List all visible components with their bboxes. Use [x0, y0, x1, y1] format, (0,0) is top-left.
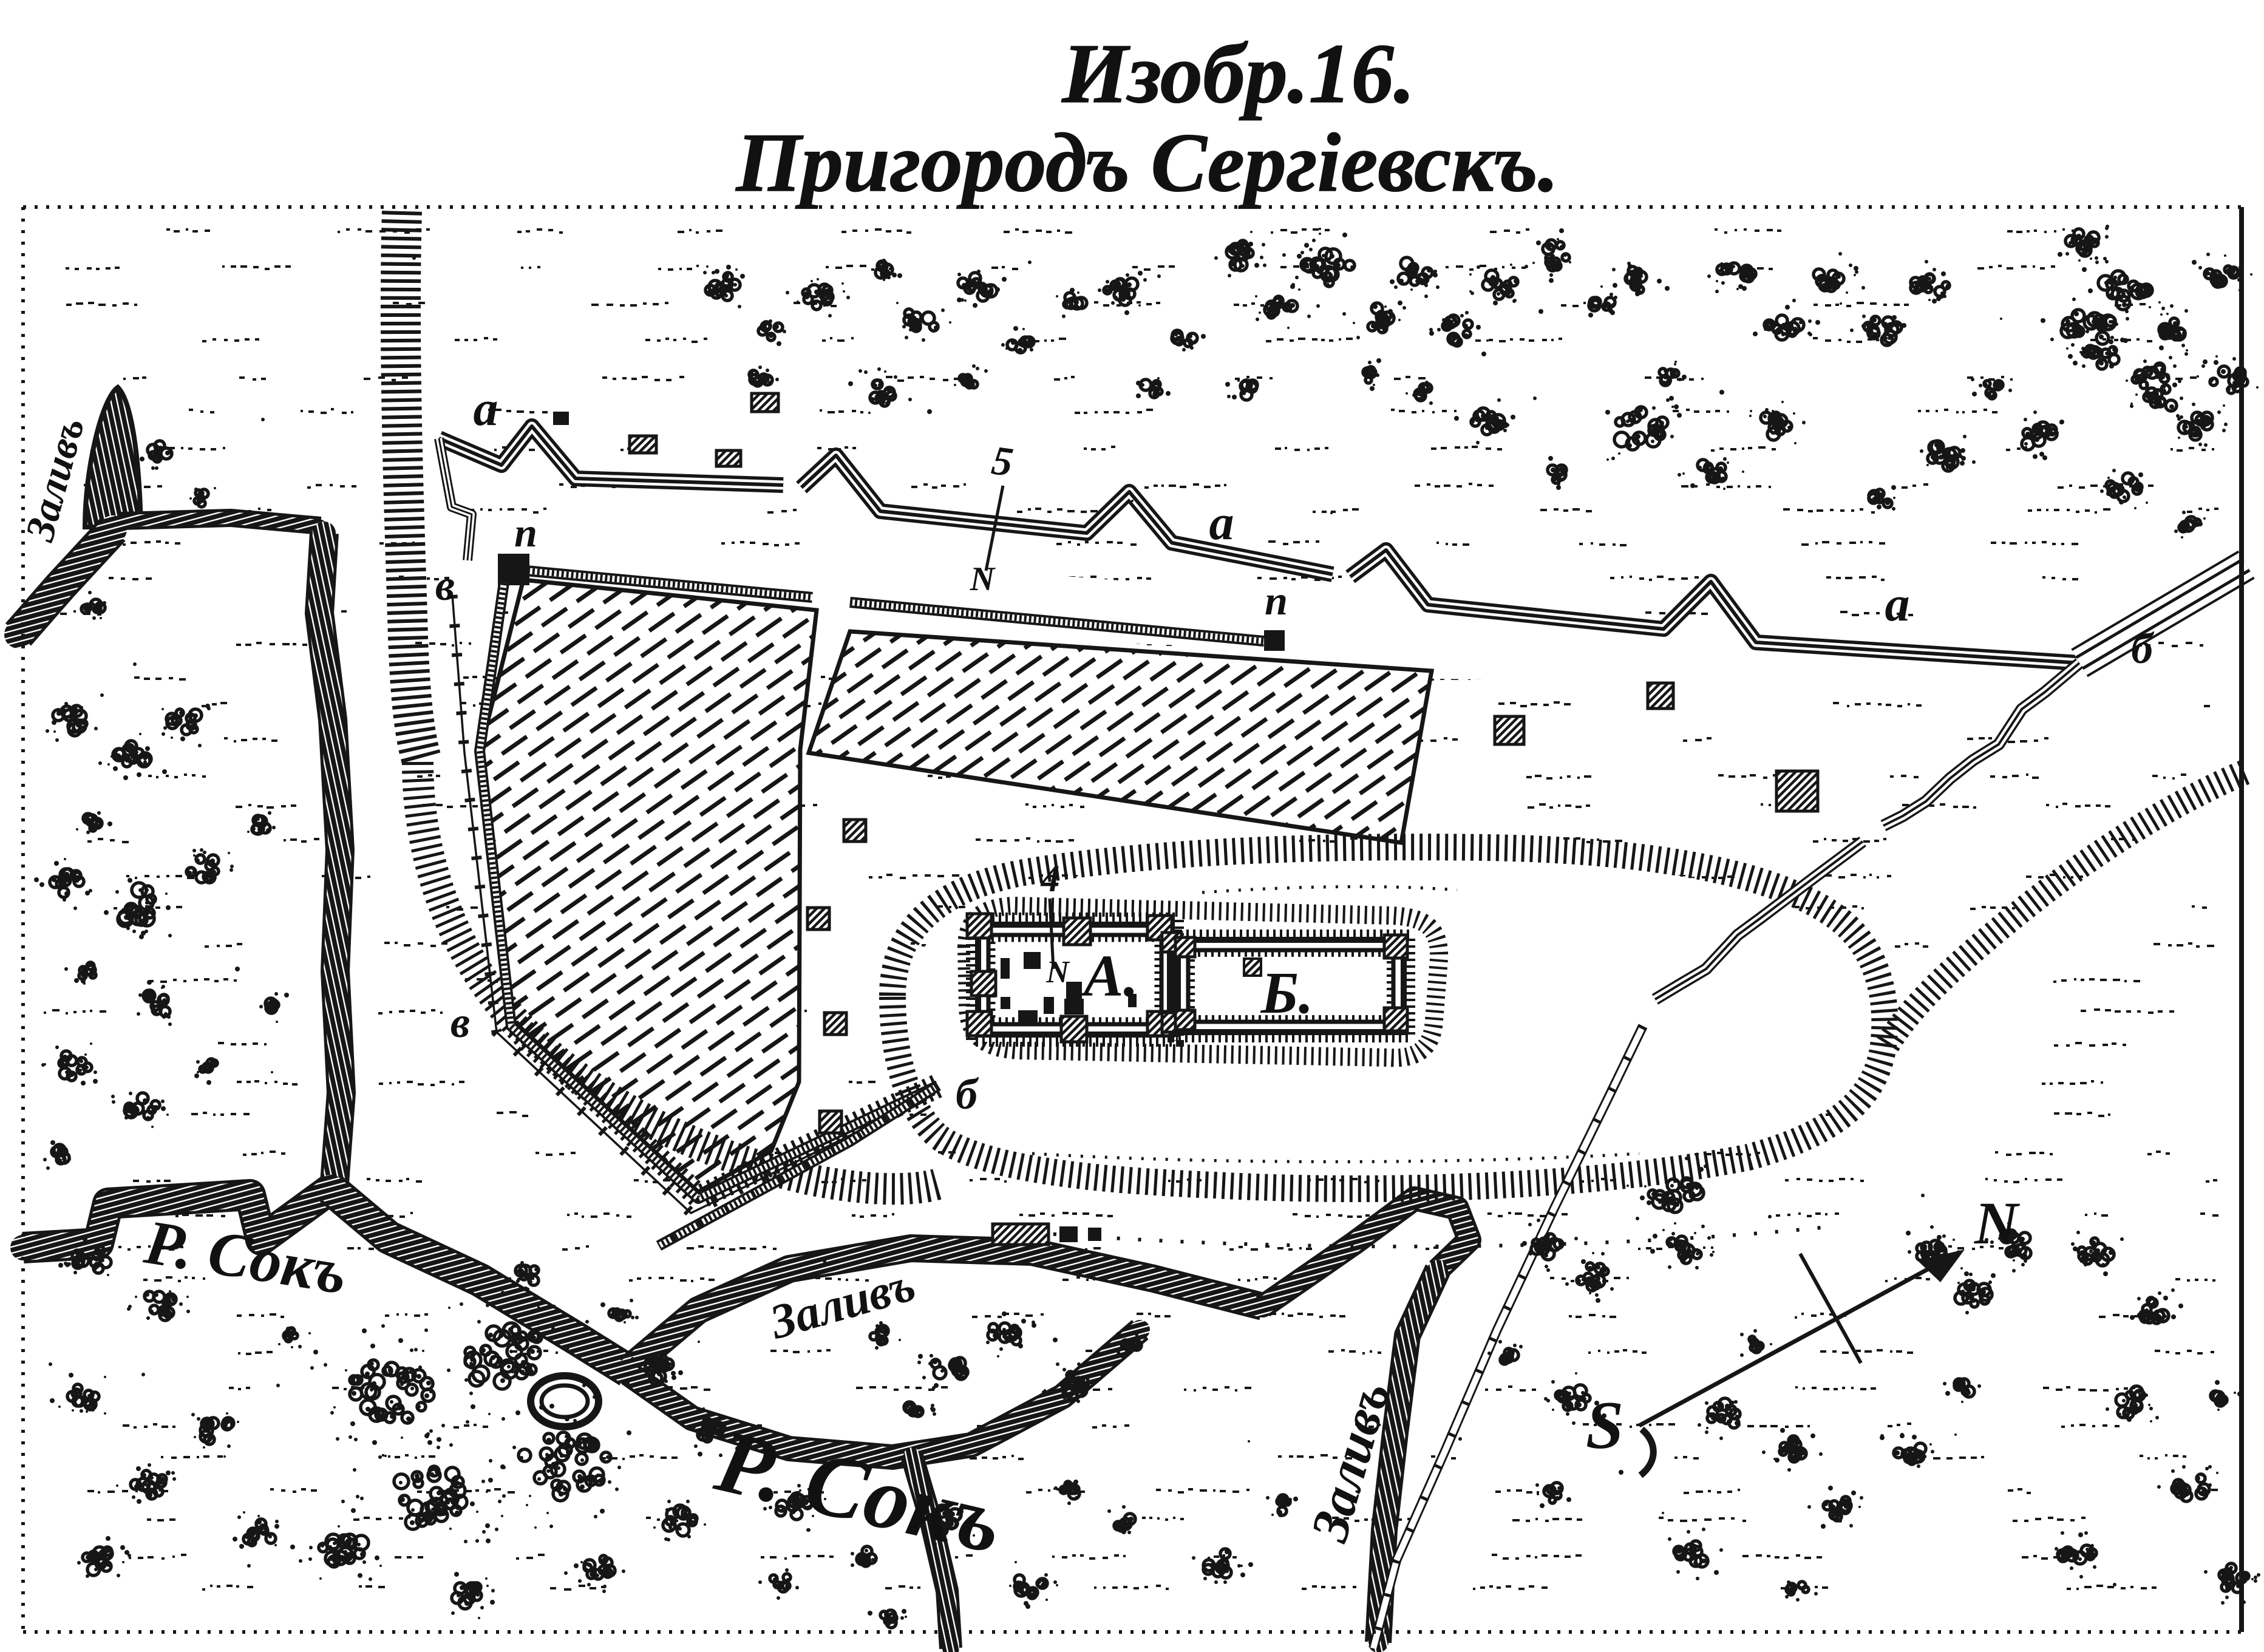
svg-text:в: в	[435, 561, 455, 610]
svg-text:N: N	[1045, 955, 1070, 990]
svg-text:n: n	[1265, 577, 1288, 624]
svg-text:n: n	[514, 509, 537, 556]
svg-text:N: N	[1974, 1189, 2021, 1257]
svg-text:a: a	[1885, 576, 1910, 631]
svg-text:в: в	[450, 998, 470, 1047]
svg-text:S: S	[1586, 1388, 1623, 1463]
svg-text:б: б	[956, 1070, 979, 1118]
svg-text:А.: А.	[1080, 943, 1138, 1009]
svg-text:Изобр.16.: Изобр.16.	[1061, 27, 1415, 121]
svg-text:Пригородъ Сергіевскъ.: Пригородъ Сергіевскъ.	[735, 116, 1559, 209]
svg-text:N: N	[970, 560, 996, 598]
svg-text:a: a	[474, 381, 498, 436]
svg-text:Б.: Б.	[1260, 960, 1314, 1026]
svg-text:4: 4	[1041, 858, 1060, 900]
svg-text:a: a	[1209, 495, 1234, 550]
svg-text:б: б	[2131, 624, 2155, 673]
